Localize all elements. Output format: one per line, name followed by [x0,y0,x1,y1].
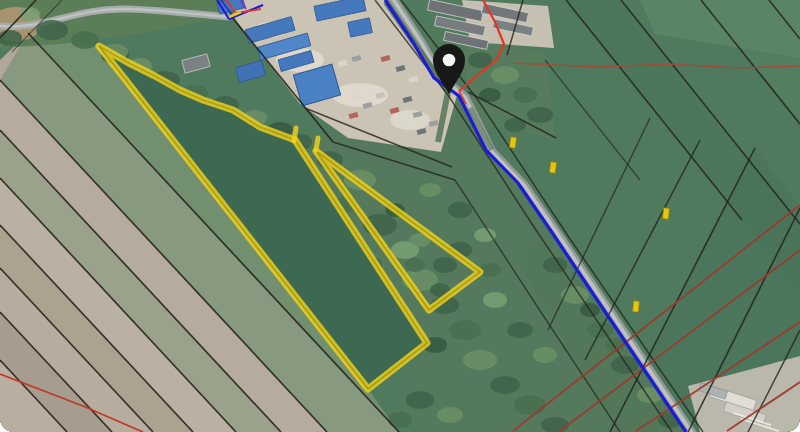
tree-canopy [406,391,434,409]
small-yellow-marker[interactable] [663,208,670,219]
tree-canopy [448,202,472,218]
small-yellow-marker[interactable] [633,301,640,312]
tree-canopy [449,320,481,340]
tree-canopy [483,292,507,308]
tree-canopy [405,258,425,272]
tree-canopy [419,183,441,197]
satellite-map[interactable] [0,0,800,432]
tree-canopy [514,395,546,415]
tree-canopy [507,322,533,338]
parcel-2-tick [316,138,318,150]
tree-canopy [533,347,557,363]
tree-canopy [513,87,537,103]
tree-canopy [527,107,553,123]
pin-hole [443,54,456,67]
tree-canopy [71,31,99,49]
tree-canopy [388,412,412,428]
tree-canopy [437,407,463,423]
tree-canopy [490,376,520,394]
map-view [0,0,800,432]
small-yellow-marker[interactable] [549,162,556,174]
tree-canopy [474,228,496,242]
tree-canopy [433,257,457,273]
small-yellow-marker[interactable] [509,137,516,149]
tree-canopy [491,66,519,84]
tree-canopy [463,350,497,370]
parcel-1-tick [294,128,296,141]
yard-patch-3 [390,110,430,130]
